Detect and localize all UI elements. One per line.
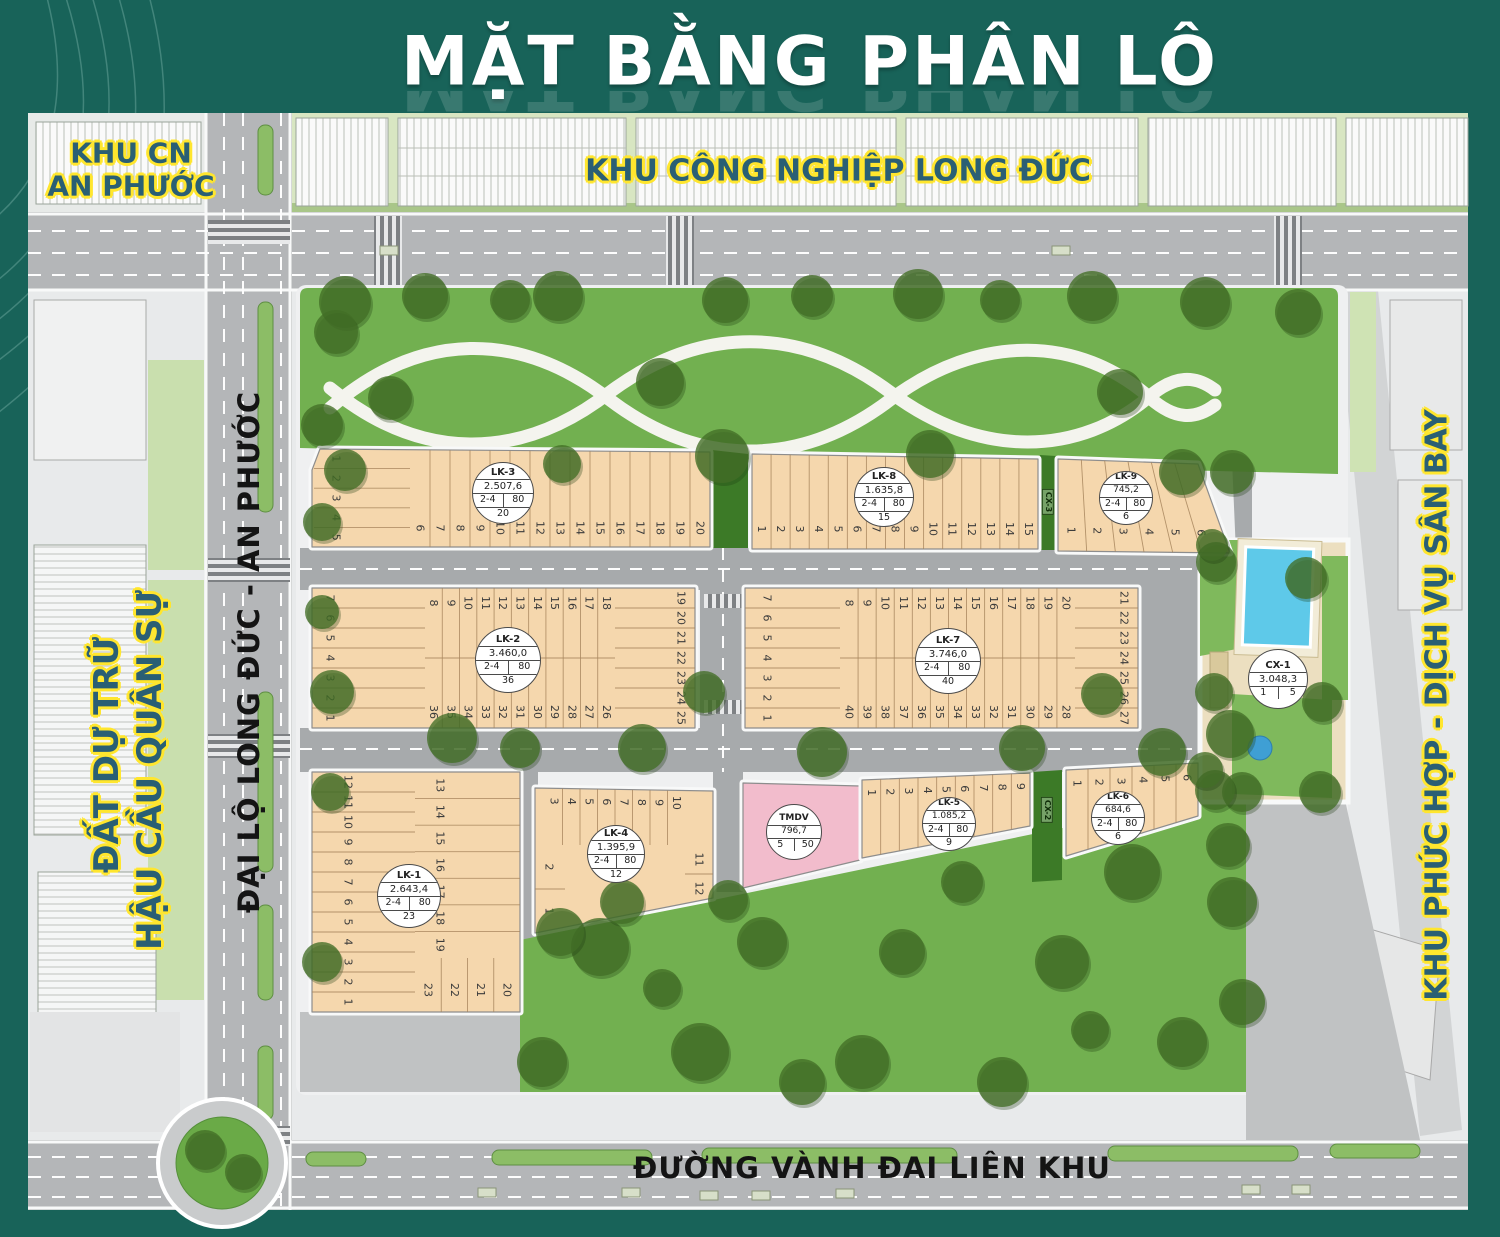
tree-icon [310,670,354,714]
lot-number: 11 [946,522,959,536]
cx2-strip [1032,770,1062,882]
lot-number: 13 [434,778,447,792]
lot-number: 10 [494,521,507,535]
lot-number: 1 [1071,780,1084,787]
lot-number: 3 [902,788,915,795]
lot-number: 7 [869,526,882,533]
lot-number: 1 [865,789,878,796]
lot-number: 22 [675,651,688,665]
tree-icon [301,404,343,446]
lot-number: 17 [1005,596,1018,610]
tree-icon [980,280,1020,320]
lot-number: 27 [1118,711,1131,725]
lot-number: 20 [1059,596,1072,610]
lot-number: 7 [977,784,990,791]
lot-number: 4 [324,655,337,662]
tree-icon [1159,449,1205,495]
lot-number: 5 [831,526,844,533]
lot-number: 14 [434,805,447,819]
lot-number: 17 [634,521,647,535]
lot-number: 31 [514,705,527,719]
tree-icon [533,271,583,321]
lot-number: 9 [342,839,355,846]
lot-number: 18 [434,911,447,925]
lot-number: 5 [761,635,774,642]
tree-icon [314,310,358,354]
lot-number: 31 [1005,705,1018,719]
lot-number: 35 [933,705,946,719]
tree-icon [1097,369,1143,415]
lot-number: 6 [761,615,774,622]
lot-number: 23 [1118,631,1131,645]
lot-number: 3 [1115,778,1128,785]
tree-icon [636,358,684,406]
lot-number: 19 [1041,596,1054,610]
lot-number: 8 [454,525,467,532]
lot-number: 4 [761,655,774,662]
tree-icon [1299,771,1341,813]
lot-number: 21 [1118,591,1131,605]
tree-icon [324,449,366,491]
tree-icon [1081,673,1123,715]
lot-number: 3 [547,798,560,805]
tree-icon [185,1130,225,1170]
tree-icon [671,1023,729,1081]
lot-number: 9 [908,526,921,533]
lot-number: 9 [1014,783,1027,790]
lot-number: 2 [774,526,787,533]
lot-number: 19 [434,938,447,952]
lot-number: 32 [987,705,1000,719]
lot-number: 13 [933,596,946,610]
lot-number: 11 [514,521,527,535]
lot-number: 36 [427,705,440,719]
tree-icon [303,503,341,541]
lot-number: 36 [915,705,928,719]
lot-number: 8 [342,859,355,866]
tree-icon [1071,1011,1109,1049]
tree-icon [1067,271,1117,321]
lot-number: 13 [984,522,997,536]
industrial-zone-top [292,113,1468,213]
lot-number: 15 [434,831,447,845]
lot-number: 6 [850,526,863,533]
lot-number: 10 [342,815,355,829]
lot-number: 8 [635,799,648,806]
lot-number: 26 [600,705,613,719]
lot-number: 34 [951,705,964,719]
tree-icon [302,942,342,982]
tree-icon [999,725,1045,771]
tree-icon [311,773,349,811]
lot-number: 16 [434,858,447,872]
lot-number: 11 [693,853,706,867]
tree-icon [1195,673,1233,711]
lot-number: 13 [514,596,527,610]
lot-number: 12 [693,882,706,896]
lot-number: 3 [761,675,774,682]
lot-number: 37 [897,705,910,719]
lot-number: 19 [674,521,687,535]
tree-icon [1285,557,1327,599]
tree-icon [427,713,477,763]
lot-number: 38 [879,705,892,719]
lot-number: 2 [1091,527,1104,534]
tree-icon [536,908,584,956]
lot-number: 2 [884,788,897,795]
tree-icon [835,1035,889,1089]
lot-number: 12 [965,522,978,536]
tree-icon [1206,823,1250,867]
tree-icon [779,1059,825,1105]
tree-icon [737,917,787,967]
lot-number: 11 [897,596,910,610]
lot-number: 27 [583,705,596,719]
lot-number: 4 [342,939,355,946]
lot-number: 10 [879,596,892,610]
lot-number: 1 [755,526,768,533]
lot-number: 1 [761,715,774,722]
lot-number: 14 [951,596,964,610]
tree-icon [1157,1017,1207,1067]
lot-number: 29 [548,705,561,719]
tree-icon [305,595,339,629]
lot-number: 5 [940,786,953,793]
lot-number: 18 [654,521,667,535]
tree-icon [618,724,666,772]
lot-number: 28 [1059,705,1072,719]
lot-number: 10 [462,596,475,610]
tree-icon [490,280,530,320]
lot-number: 13 [554,521,567,535]
lot-number: 6 [958,785,971,792]
tree-icon [500,728,540,768]
lot-number: 2 [761,695,774,702]
tree-icon [702,277,748,323]
lot-number: 1 [1065,527,1078,534]
lot-number: 7 [761,595,774,602]
lot-number: 14 [1003,522,1016,536]
tree-icon [225,1154,261,1190]
lot-number: 9 [444,600,457,607]
lot-number: 1 [342,999,355,1006]
tree-icon [1302,682,1342,722]
lot-number: 14 [531,596,544,610]
lot-number: 9 [861,600,874,607]
lot-number: 15 [969,596,982,610]
lot-number: 17 [583,596,596,610]
lot-number: 2 [342,979,355,986]
lot-number: 5 [342,919,355,926]
lot-number: 2 [543,864,556,871]
tree-icon [1210,450,1254,494]
tree-icon [695,429,749,483]
lot-number: 15 [594,521,607,535]
lot-number: 12 [534,521,547,535]
site-plan-map: 1211109876543211314151617181923222120765… [0,0,1500,1237]
lot-number: 9 [474,525,487,532]
lot-number: 7 [617,799,630,806]
tree-icon [1219,979,1265,1025]
lot-number: 33 [479,705,492,719]
lot-number: 30 [1023,705,1036,719]
lot-number: 3 [330,495,343,502]
tree-icon [543,445,581,483]
tree-icon [517,1037,567,1087]
lot-number: 20 [694,521,707,535]
tree-icon [402,273,448,319]
tree-icon [1196,529,1228,561]
lot-number: 6 [414,525,427,532]
tree-icon [977,1057,1027,1107]
lot-number: 8 [889,526,902,533]
lot-number: 12 [496,596,509,610]
lot-number: 8 [843,600,856,607]
tree-icon [1180,277,1230,327]
lot-number: 9 [652,799,665,806]
lot-number: 15 [548,596,561,610]
lot-number: 8 [996,784,1009,791]
master-plan-poster: 1211109876543211314151617181923222120765… [0,0,1500,1237]
lot-number: 16 [565,596,578,610]
lot-number: 11 [479,596,492,610]
lot-number: 19 [675,591,688,605]
tree-icon [941,861,983,903]
tree-icon [1187,752,1223,788]
lot-number: 16 [614,521,627,535]
lot-number: 24 [1118,651,1131,665]
lot-number: 4 [1137,776,1150,783]
lot-number: 4 [812,526,825,533]
lot-number: 7 [342,879,355,886]
lot-number: 5 [582,798,595,805]
lot-number: 2 [1093,779,1106,786]
lot-number: 28 [565,705,578,719]
lot-number: 6 [342,899,355,906]
lot-number: 32 [496,705,509,719]
lot-number: 16 [987,596,1000,610]
tree-icon [708,880,748,920]
lot-number: 20 [675,611,688,625]
tree-icon [1207,877,1257,927]
lot-number: 22 [1118,611,1131,625]
lot-number: 18 [600,596,613,610]
tree-icon [797,727,847,777]
lot-number: 12 [915,596,928,610]
tree-icon [893,269,943,319]
lot-number: 20 [500,983,513,997]
lot-number: 18 [1023,596,1036,610]
tree-icon [1275,289,1321,335]
lot-number: 5 [324,635,337,642]
lot-number: 7 [434,525,447,532]
lot-number: 10 [670,796,683,810]
lot-number: 40 [843,705,856,719]
tree-icon [600,880,644,924]
lot-number: 4 [921,787,934,794]
tree-icon [368,376,412,420]
tree-icon [643,969,681,1007]
lot-number: 6 [600,798,613,805]
lot-number: 8 [427,600,440,607]
lot-number: 5 [1169,529,1182,536]
lot-number: 39 [861,705,874,719]
lot-number: 21 [474,983,487,997]
lot-number: 30 [531,705,544,719]
tree-icon [1206,710,1254,758]
lot-number: 25 [675,711,688,725]
lot-number: 21 [675,631,688,645]
tree-icon [791,275,833,317]
lot-number: 14 [574,521,587,535]
tree-icon [1104,844,1160,900]
lot-number: 10 [927,522,940,536]
lot-number: 23 [422,983,435,997]
cx3-strip [1040,455,1056,550]
lot-number: 22 [448,983,461,997]
lot-number: 4 [565,798,578,805]
tree-icon [906,430,954,478]
lot-number: 17 [434,885,447,899]
tree-icon [1138,728,1186,776]
lot-number: 15 [1022,522,1035,536]
lot-number: 33 [969,705,982,719]
lot-number: 3 [1117,528,1130,535]
lot-number: 29 [1041,705,1054,719]
tree-icon [879,929,925,975]
lot-number: 4 [1143,528,1156,535]
lot-number: 3 [793,526,806,533]
tree-icon [1035,935,1089,989]
tree-icon [683,671,725,713]
